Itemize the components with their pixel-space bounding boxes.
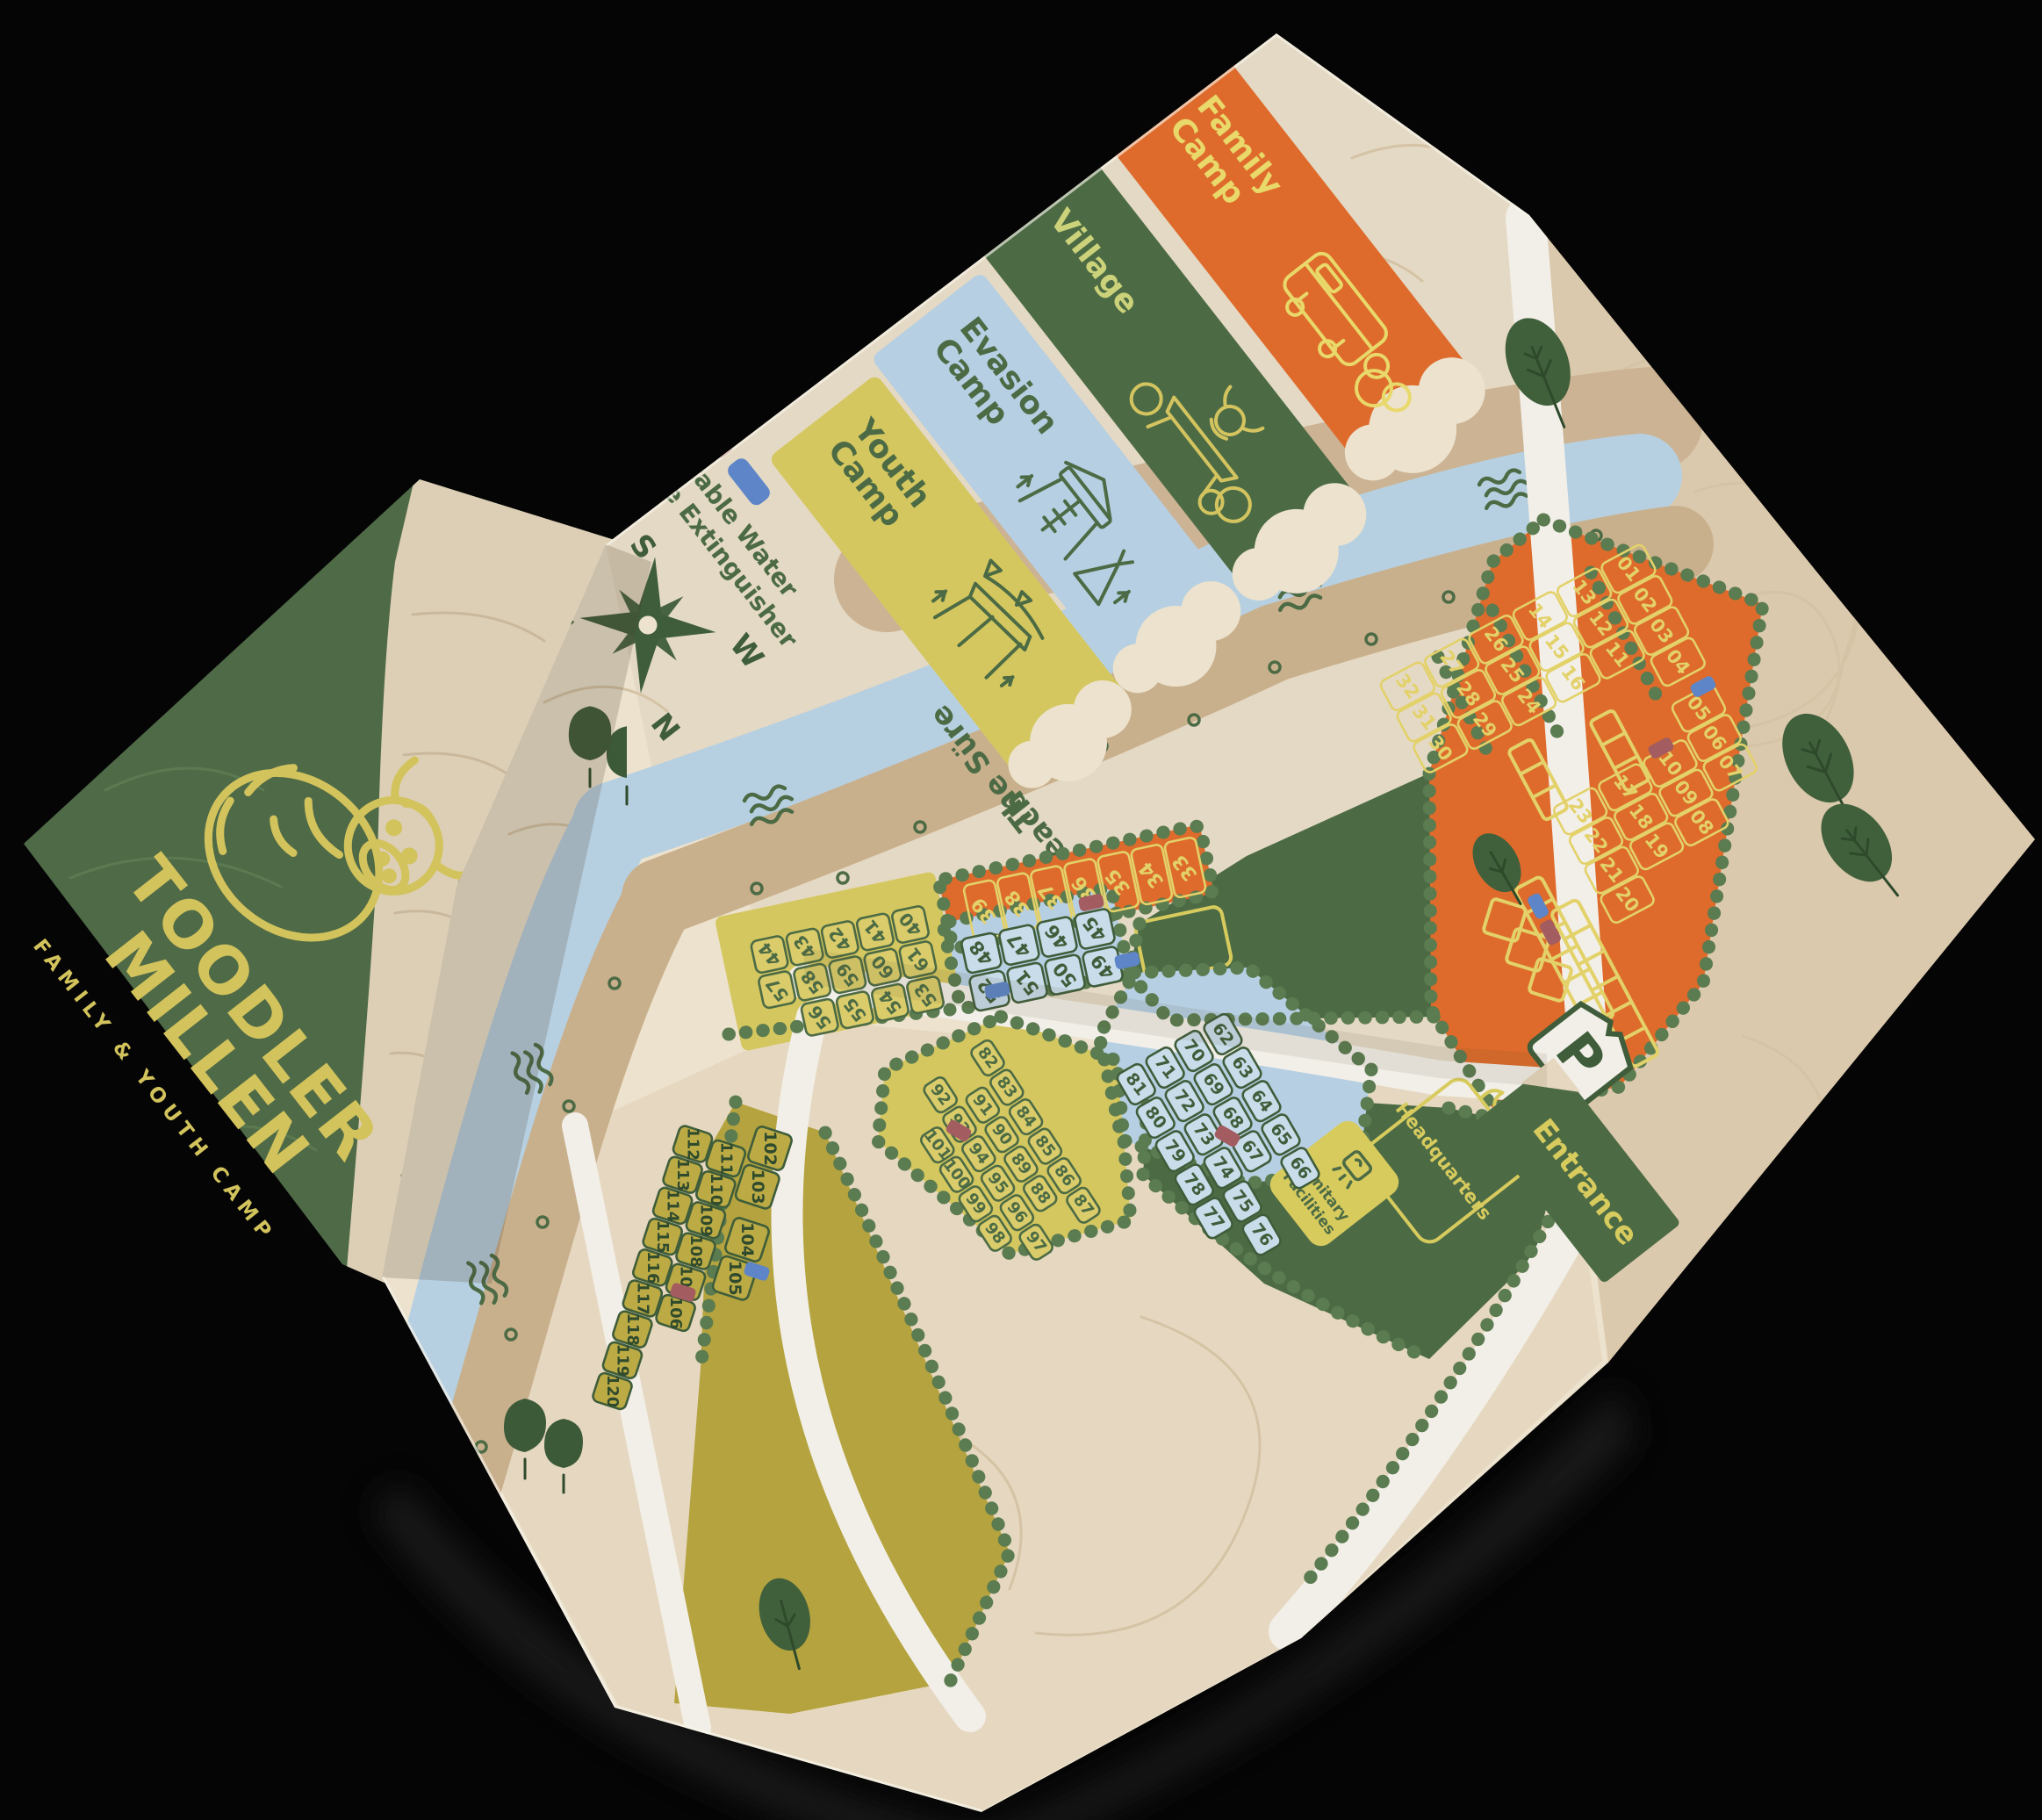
plot-number-112: 112: [684, 1127, 702, 1161]
plot-number-102: 102: [760, 1131, 780, 1166]
folded-map-illustration: TOODLER MILLEN FAMILY & YOUTH CAMP: [0, 0, 2042, 1820]
plot-number-115: 115: [653, 1220, 672, 1254]
plot-number-105: 105: [725, 1261, 744, 1296]
plot-number-116: 116: [644, 1251, 662, 1284]
plot-number-109: 109: [696, 1204, 715, 1237]
plot-number-114: 114: [664, 1190, 682, 1223]
mockup-scene: TOODLER MILLEN FAMILY & YOUTH CAMP: [0, 0, 2042, 1820]
plot-number-118: 118: [623, 1313, 642, 1346]
plot-number-110: 110: [707, 1173, 725, 1206]
plot-number-113: 113: [673, 1158, 692, 1191]
plot-number-103: 103: [748, 1169, 767, 1205]
plot-number-117: 117: [633, 1282, 651, 1315]
plot-number-111: 111: [716, 1142, 735, 1176]
plot-number-104: 104: [737, 1222, 757, 1257]
plot-number-108: 108: [687, 1234, 705, 1268]
plot-number-119: 119: [613, 1344, 631, 1378]
plot-number-120: 120: [603, 1375, 622, 1408]
plot-number-106: 106: [666, 1297, 685, 1330]
